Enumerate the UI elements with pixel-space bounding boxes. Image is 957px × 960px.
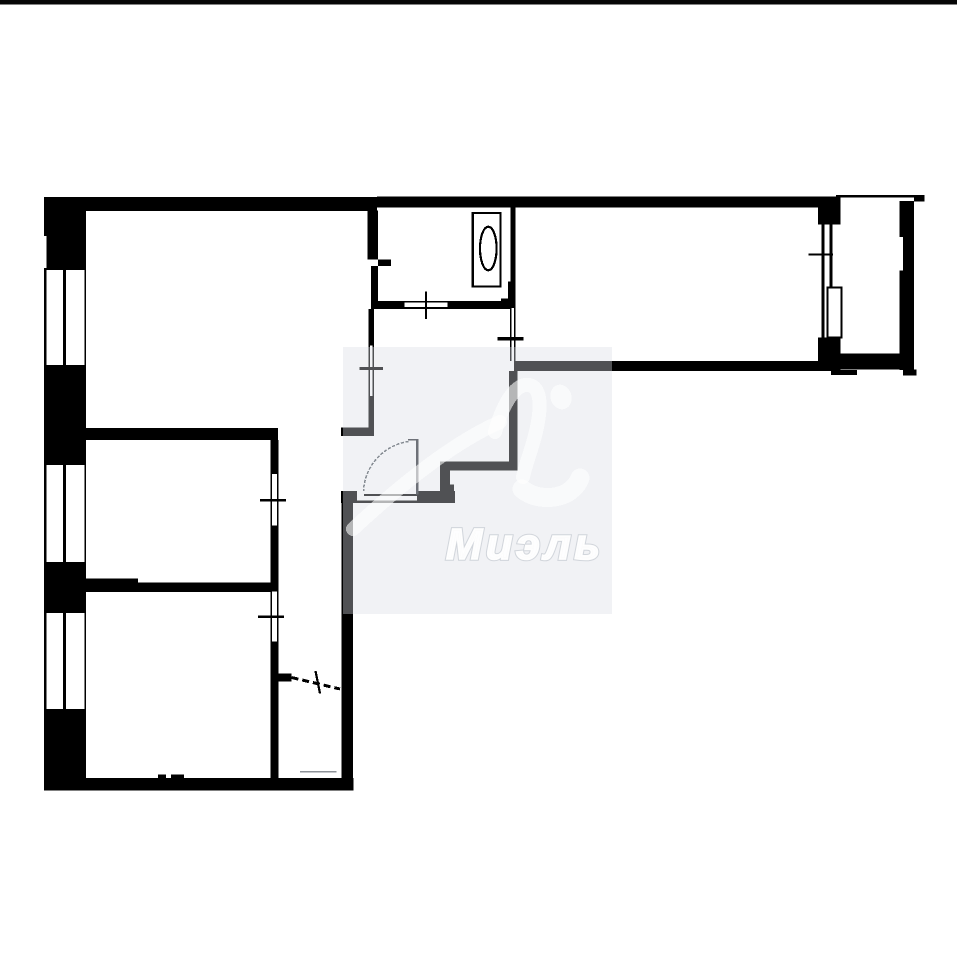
svg-text:Миэль: Миэль [446,521,604,569]
